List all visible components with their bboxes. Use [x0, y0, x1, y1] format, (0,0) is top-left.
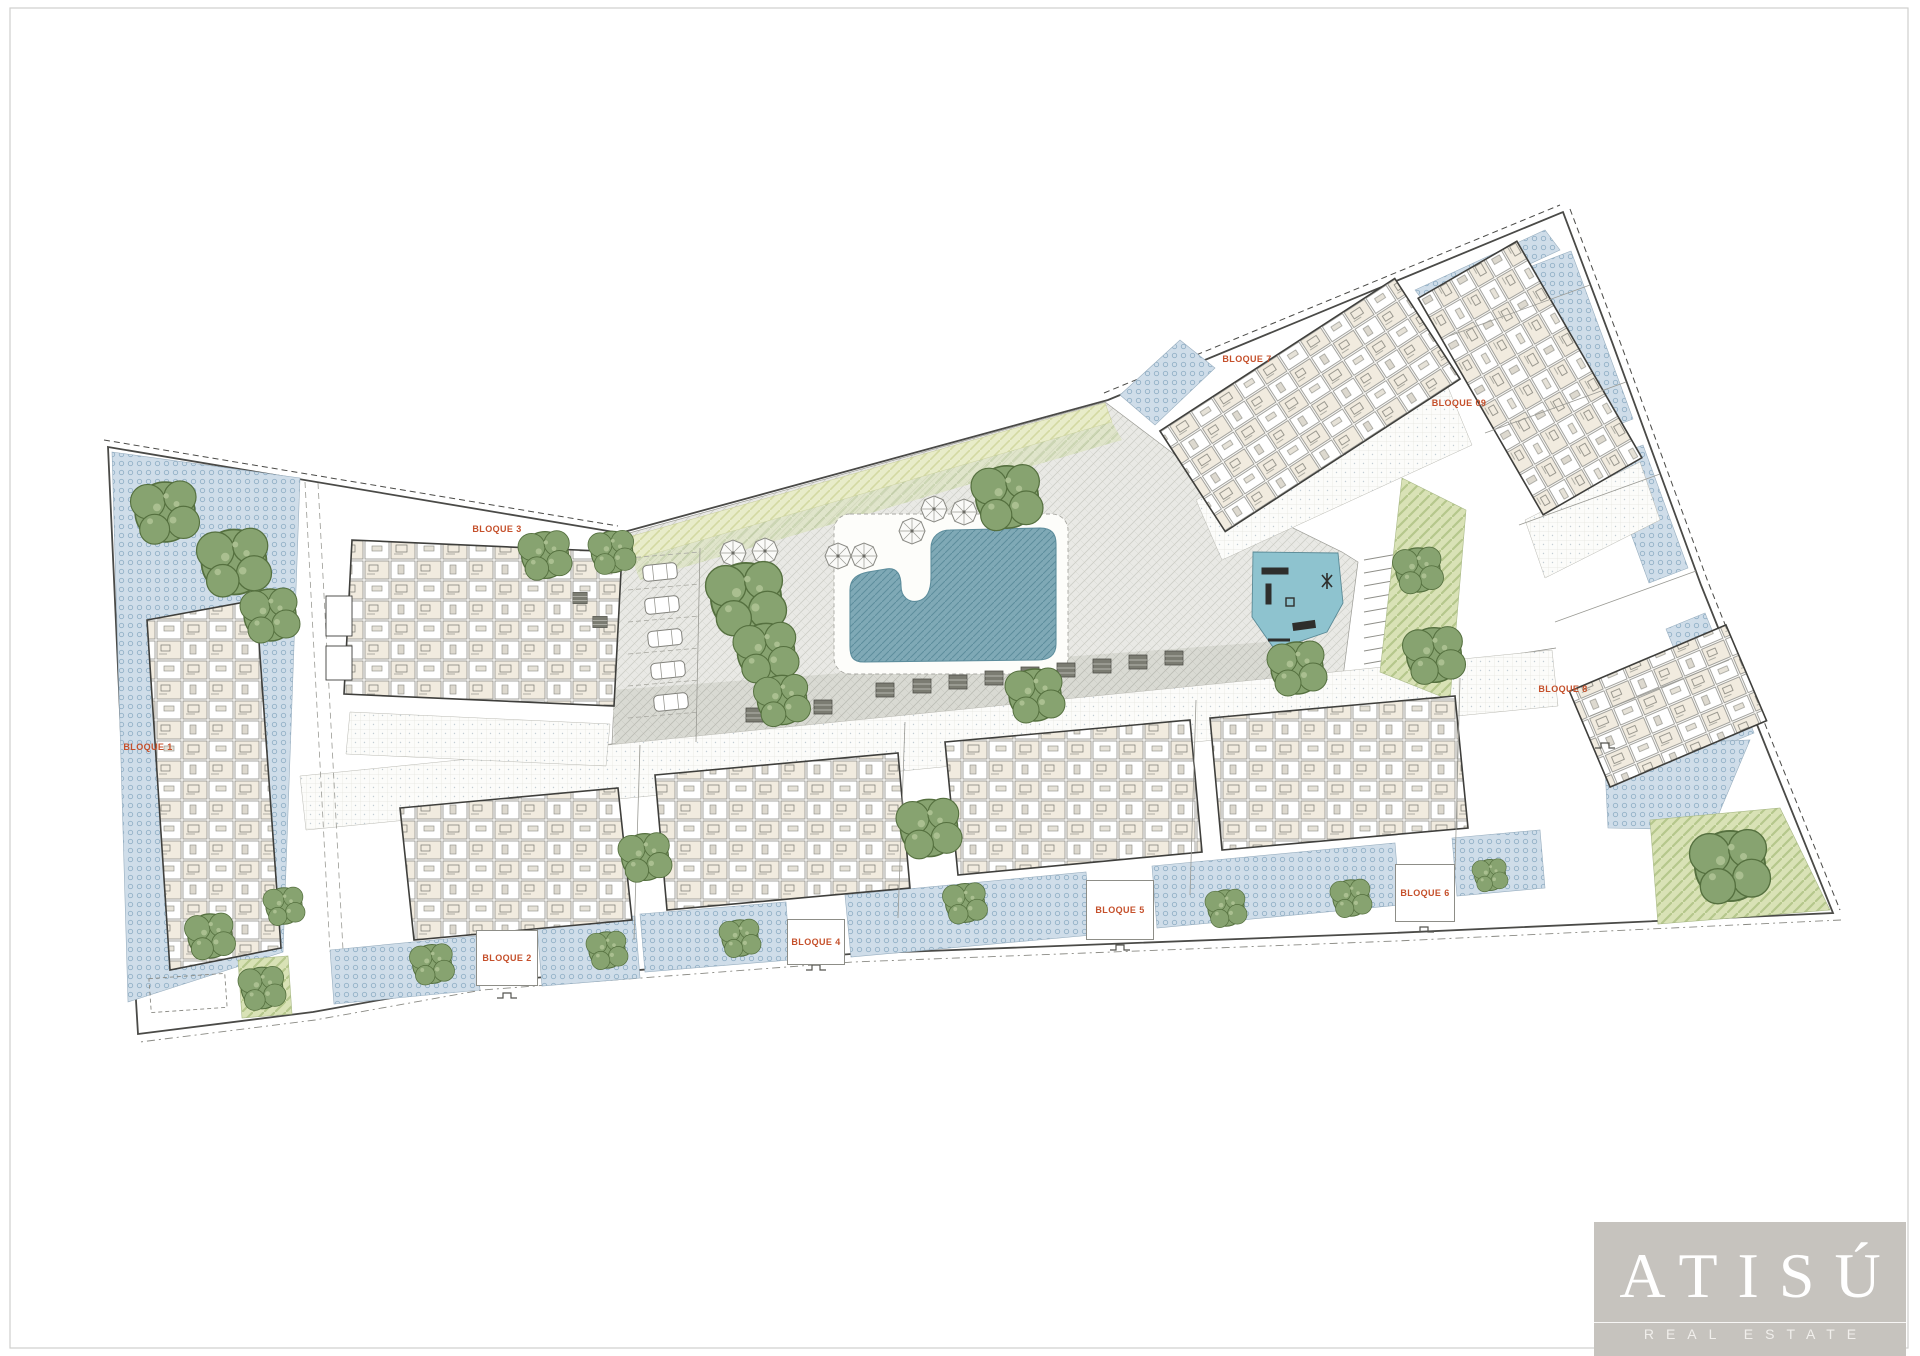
atisu-logo: ATISÚ REAL ESTATE [1594, 1222, 1906, 1356]
bloque-5-building [945, 720, 1202, 875]
bloque-3-building [344, 540, 622, 706]
bloque-2-building [400, 788, 632, 940]
pool-area [834, 514, 1068, 674]
bloque-6-building [1210, 696, 1468, 850]
logo-wordmark: ATISÚ [1599, 1244, 1900, 1308]
logo-tagline: REAL ESTATE [1632, 1326, 1868, 1342]
site-plan-page: BLOQUE 1BLOQUE 2BLOQUE 3BLOQUE 4BLOQUE 5… [0, 0, 1920, 1356]
site-plan-drawing [0, 0, 1920, 1356]
bloque-4-building [655, 753, 910, 910]
logo-tagline-rule: REAL ESTATE [1594, 1322, 1906, 1342]
